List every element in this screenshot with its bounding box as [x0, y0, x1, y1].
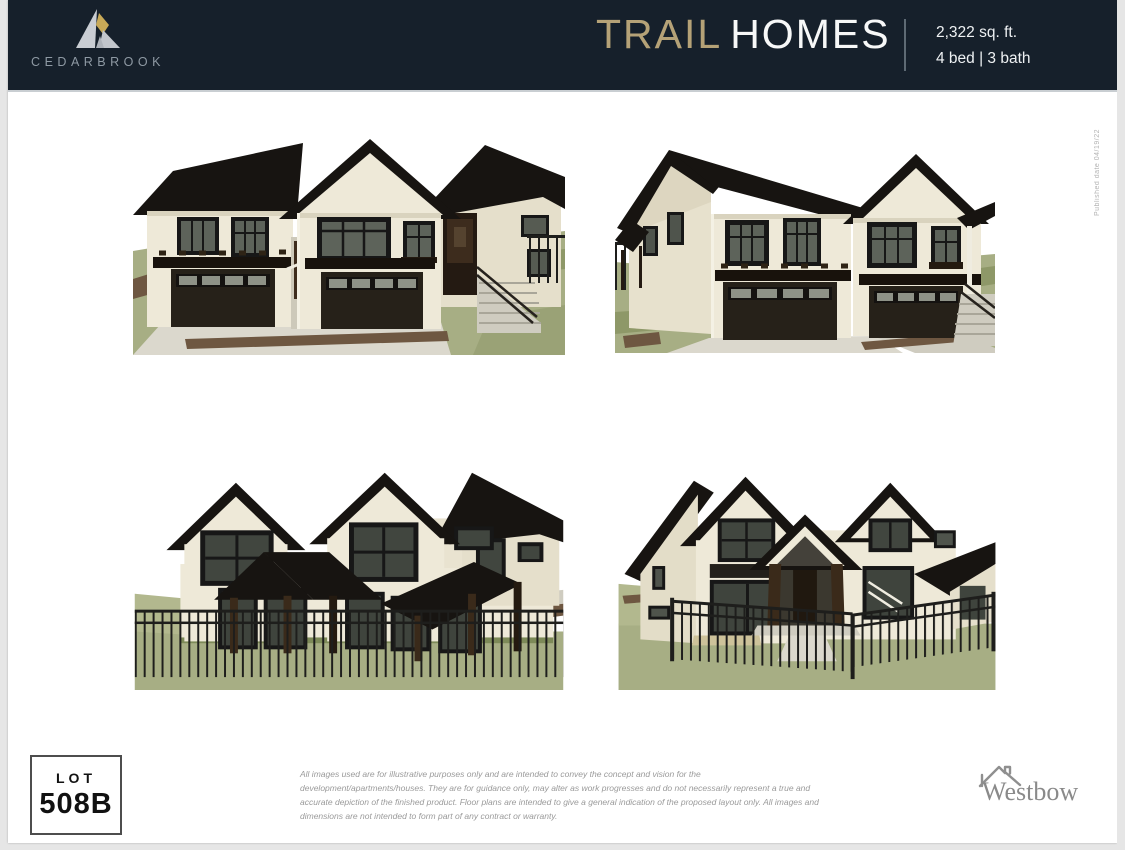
header-bar: CEDARBROOK TRAILHOMES 2,322 sq. ft. 4 be…: [8, 0, 1117, 92]
scrollbar-track[interactable]: [1117, 0, 1125, 850]
spec-beds-baths: 4 bed | 3 bath: [936, 46, 1031, 72]
spec-area: 2,322 sq. ft.: [936, 20, 1031, 46]
brand-block: CEDARBROOK: [30, 6, 166, 69]
lot-label: LOT: [56, 770, 96, 786]
title-secondary: HOMES: [730, 11, 890, 57]
left-unit: [133, 143, 303, 327]
spec-block: 2,322 sq. ft. 4 bed | 3 bath: [936, 20, 1031, 72]
yard-fence: [135, 610, 563, 677]
center-unit: [279, 139, 461, 329]
brand-name: CEDARBROOK: [30, 55, 166, 69]
page-title: TRAILHOMES: [596, 8, 891, 60]
published-date-note: Published date 04/19/22: [1094, 106, 1101, 216]
center-unit: [711, 214, 851, 340]
lot-badge: LOT 508B: [30, 755, 122, 835]
rendering-front-exterior-b: [615, 122, 995, 353]
viewer-background: CEDARBROOK TRAILHOMES 2,322 sq. ft. 4 be…: [0, 0, 1125, 850]
side-fence: [527, 235, 565, 283]
builder-logo: Westbow: [970, 760, 1095, 818]
lot-number: 508B: [39, 788, 112, 821]
cedarbrook-logo-icon: [75, 8, 121, 50]
title-primary: TRAIL: [596, 11, 722, 57]
header-divider: [904, 19, 906, 71]
right-gable-unit: [843, 154, 995, 346]
rendering-rear-exterior-b: [617, 447, 997, 690]
builder-name: Westbow: [982, 777, 1078, 807]
rendering-rear-exterior-a: [133, 447, 565, 690]
disclaimer-text: All images used are for illustrative pur…: [300, 767, 828, 823]
brochure-page: CEDARBROOK TRAILHOMES 2,322 sq. ft. 4 be…: [8, 0, 1117, 843]
rendering-front-exterior-a: [133, 117, 565, 355]
